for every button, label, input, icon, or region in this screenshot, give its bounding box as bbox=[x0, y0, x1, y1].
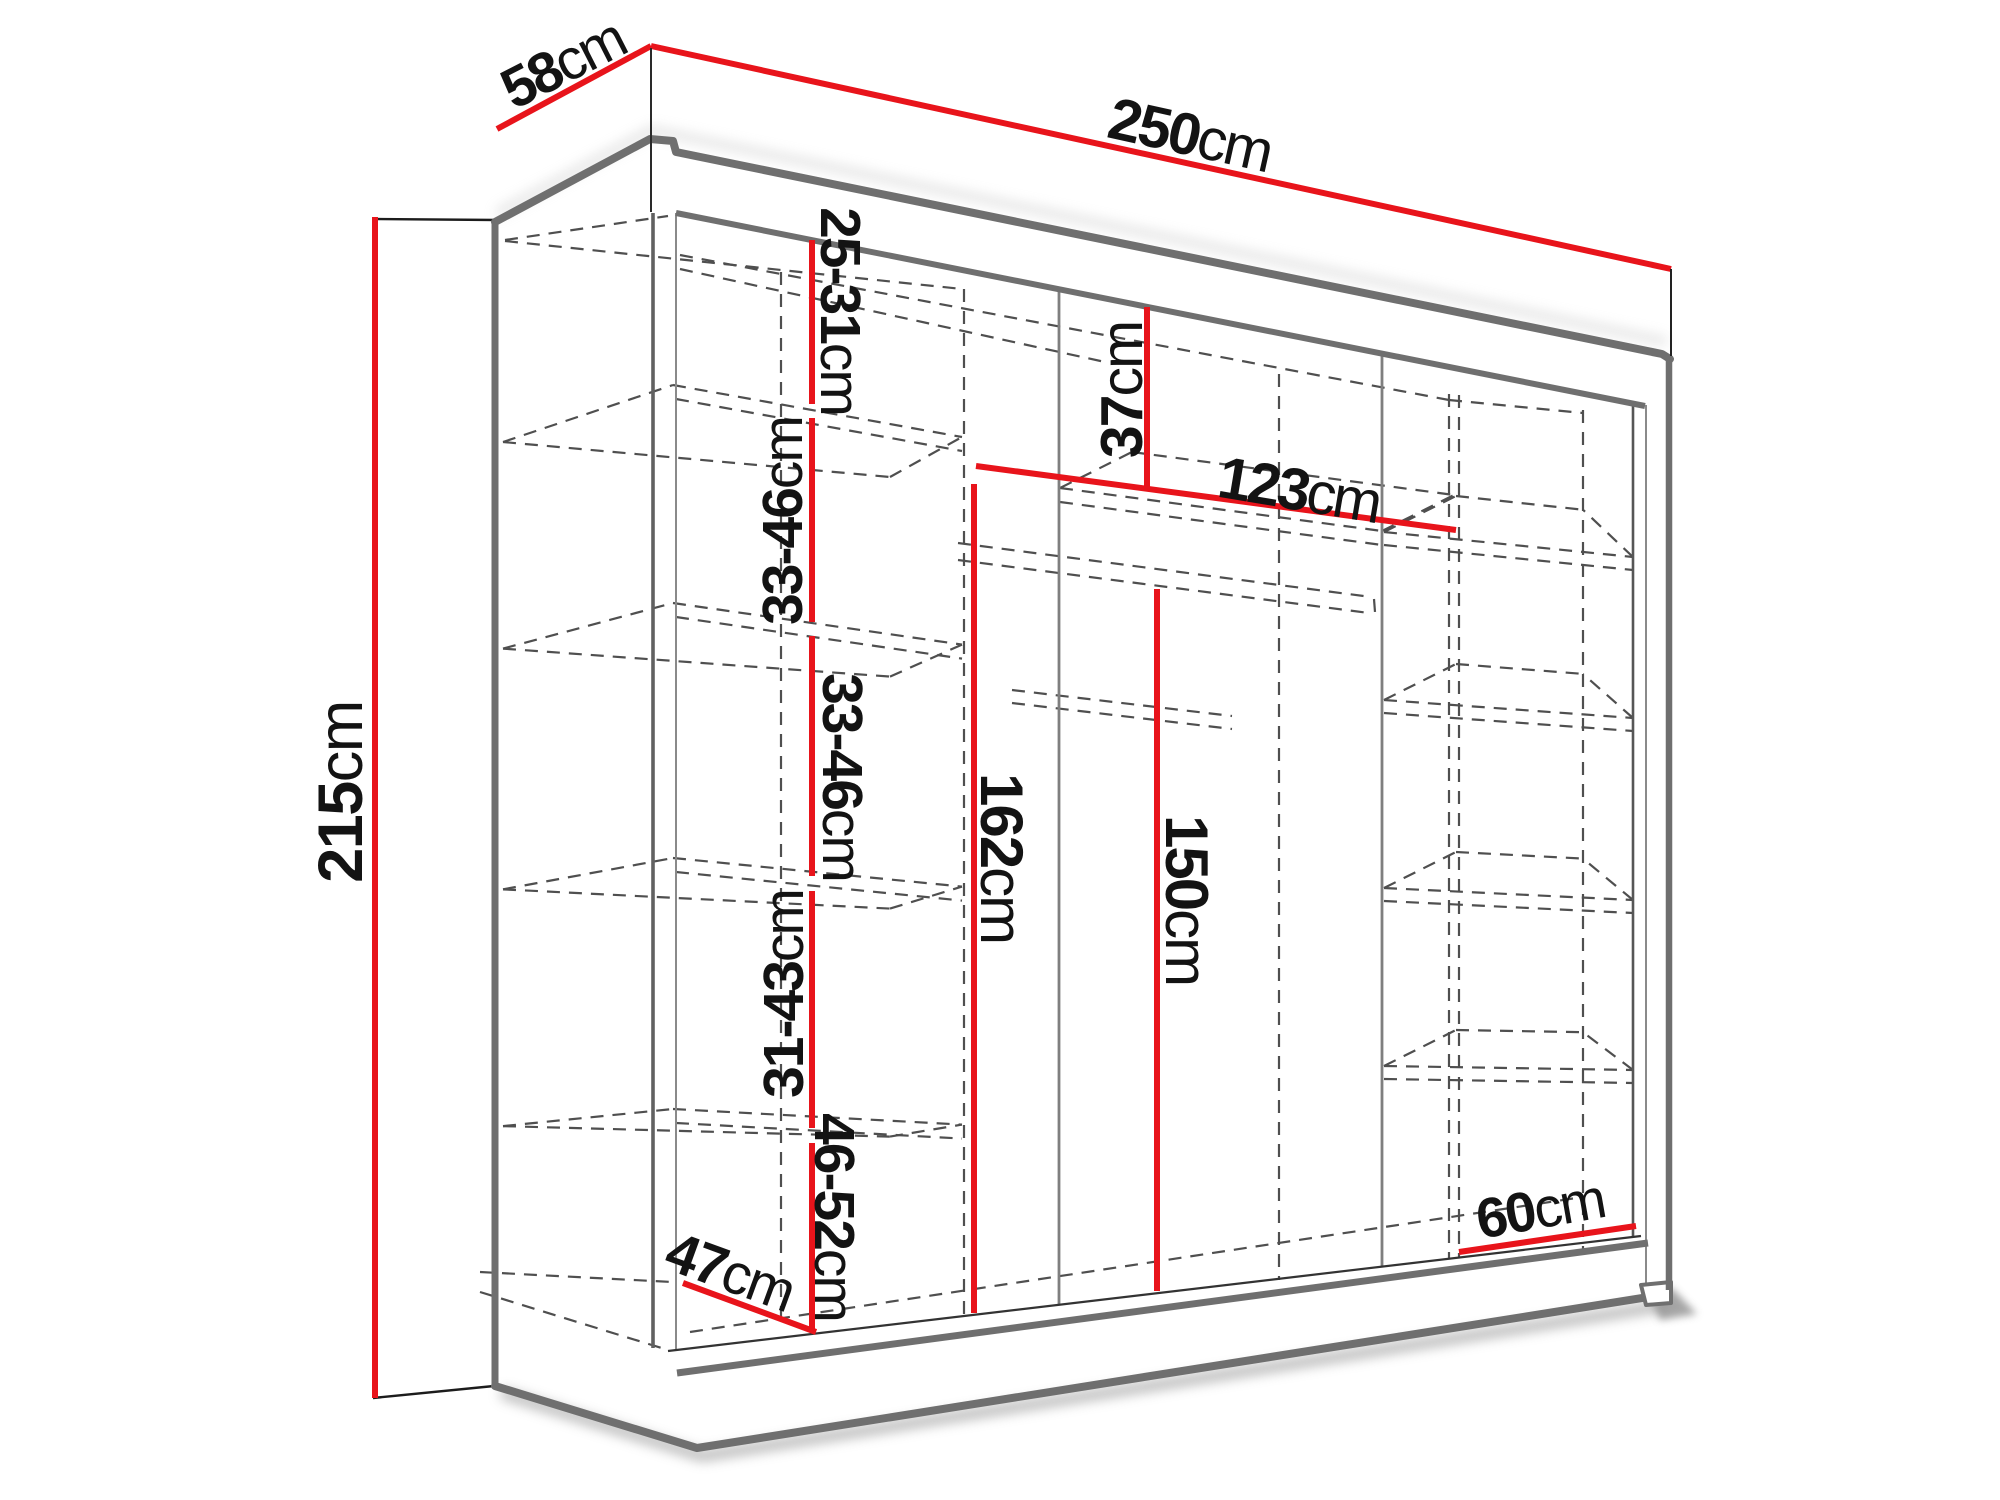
svg-text:215cm: 215cm bbox=[306, 701, 376, 883]
svg-text:33-46cm: 33-46cm bbox=[810, 673, 874, 881]
svg-text:25-31cm: 25-31cm bbox=[808, 207, 872, 415]
svg-text:150cm: 150cm bbox=[1154, 815, 1221, 985]
svg-text:37cm: 37cm bbox=[1089, 322, 1155, 458]
svg-text:33-46cm: 33-46cm bbox=[751, 417, 815, 625]
svg-text:162cm: 162cm bbox=[969, 773, 1036, 943]
svg-text:31-43cm: 31-43cm bbox=[752, 890, 816, 1098]
svg-text:46-52cm: 46-52cm bbox=[802, 1113, 866, 1321]
